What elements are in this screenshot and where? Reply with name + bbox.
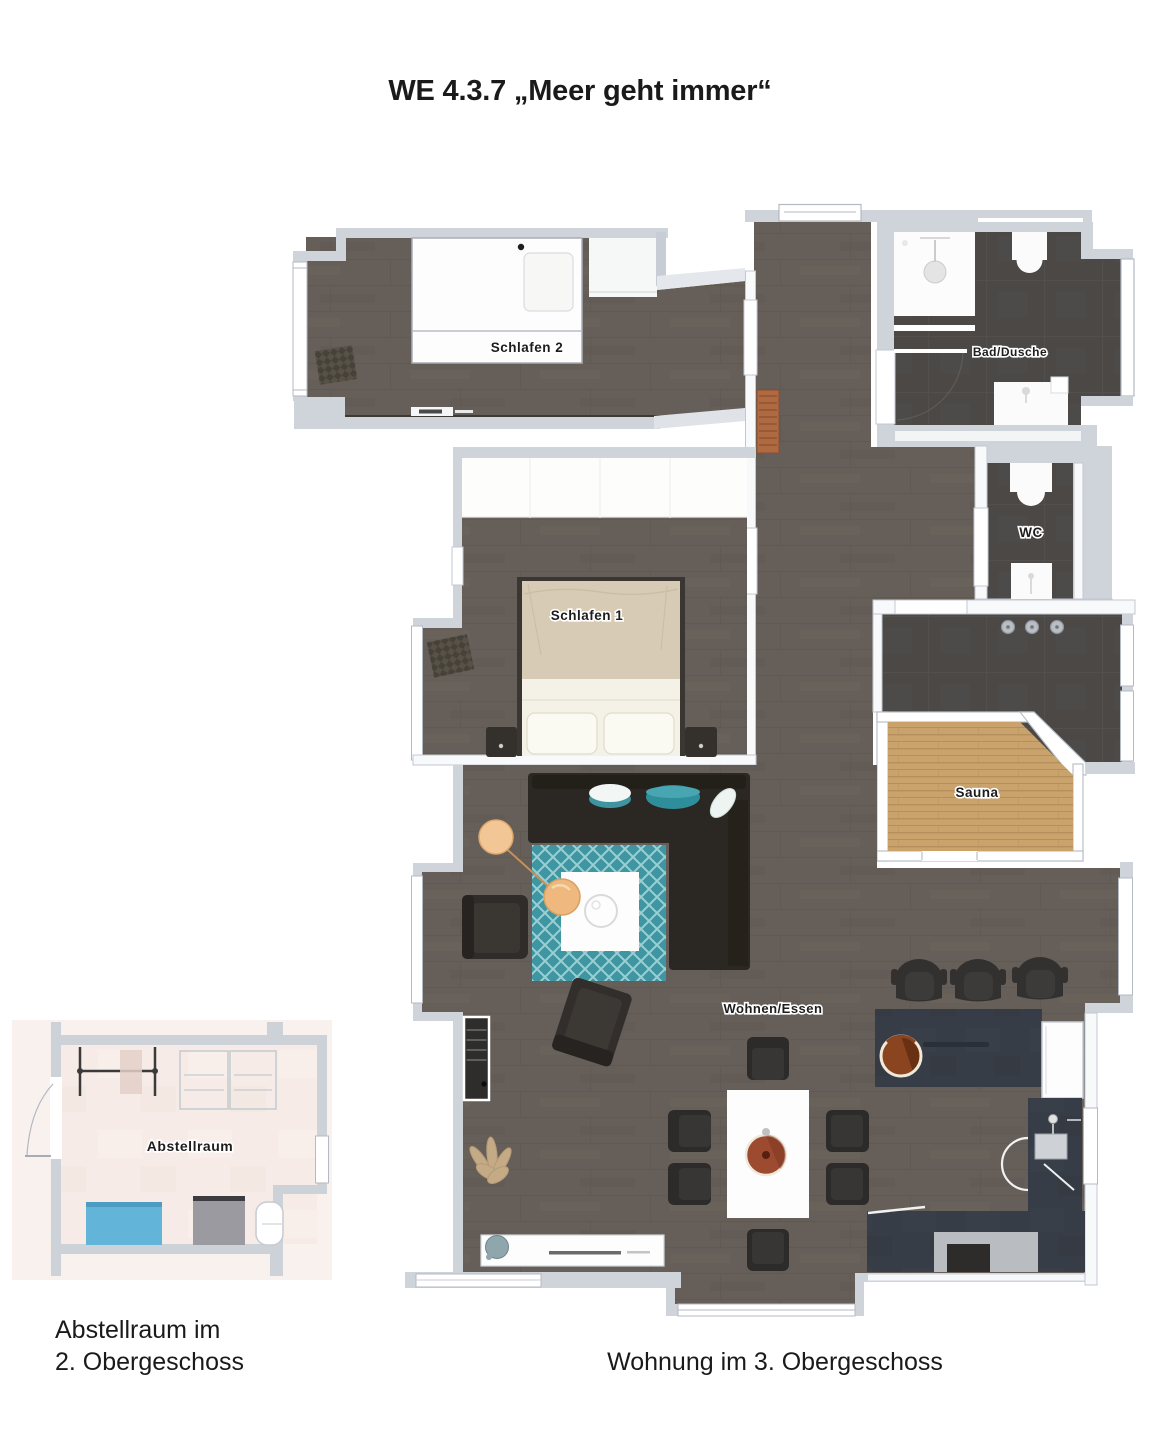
svg-text:Bad/Dusche: Bad/Dusche bbox=[973, 345, 1047, 359]
svg-text:Wohnen/Essen: Wohnen/Essen bbox=[724, 1001, 823, 1016]
svg-text:Abstellraum: Abstellraum bbox=[147, 1138, 233, 1154]
svg-text:2. Obergeschoss: 2. Obergeschoss bbox=[55, 1348, 244, 1376]
svg-text:Sauna: Sauna bbox=[955, 785, 998, 800]
svg-text:Schlafen 2: Schlafen 2 bbox=[491, 340, 564, 355]
svg-text:WC: WC bbox=[1019, 525, 1043, 540]
svg-text:Wohnung im 3. Obergeschoss: Wohnung im 3. Obergeschoss bbox=[607, 1348, 943, 1376]
svg-text:Abstellraum im: Abstellraum im bbox=[55, 1316, 220, 1344]
svg-text:Schlafen 1: Schlafen 1 bbox=[551, 608, 624, 623]
svg-text:WE 4.3.7 „Meer geht immer“: WE 4.3.7 „Meer geht immer“ bbox=[388, 75, 771, 107]
